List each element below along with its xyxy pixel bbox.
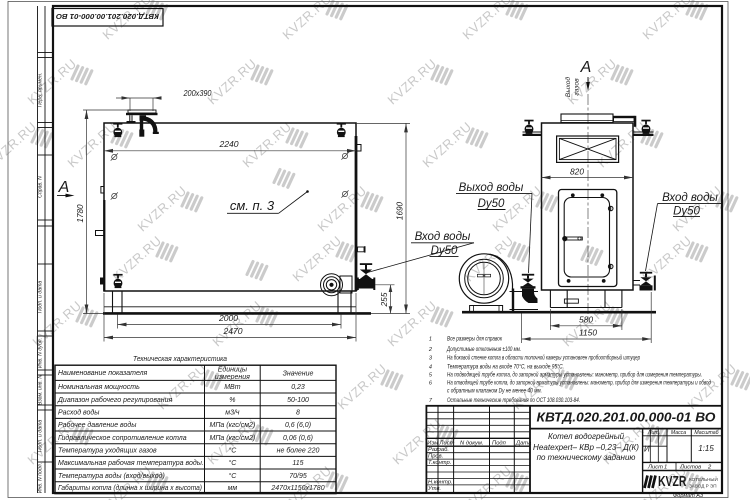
svg-text:0,06 (0,6): 0,06 (0,6) (283, 435, 313, 442)
svg-text:ЗАВОД Р ЭП: ЗАВОД Р ЭП (689, 484, 717, 489)
svg-text:1: 1 (429, 337, 432, 343)
svg-text:МПа (кгс/см2): МПа (кгс/см2) (210, 422, 256, 429)
svg-text:KVZR: KVZR (658, 474, 687, 490)
svg-text:мм: мм (228, 485, 238, 492)
svg-text:2: 2 (707, 465, 712, 471)
svg-text:Dy50: Dy50 (673, 206, 700, 218)
svg-text:255: 255 (379, 292, 389, 307)
svg-text:На боковой стенке котла в обла: На боковой стенке котла в области топочн… (447, 355, 640, 362)
svg-text:Инв. N дубл.: Инв. N дубл. (38, 338, 44, 368)
svg-text:7: 7 (429, 398, 433, 404)
svg-text:Масса: Масса (671, 430, 686, 436)
svg-text:8: 8 (296, 410, 300, 417)
svg-text:1150: 1150 (579, 328, 597, 338)
svg-text:°С: °С (228, 447, 237, 455)
svg-text:МПа (кгс/см2): МПа (кгс/см2) (210, 435, 256, 442)
svg-text:5: 5 (429, 373, 433, 379)
svg-text:Дата: Дата (515, 440, 532, 446)
svg-text:0,23: 0,23 (291, 384, 305, 391)
svg-text:6: 6 (429, 381, 433, 387)
svg-text:Изм: Изм (427, 440, 438, 446)
svg-text:Перв. примен.: Перв. примен. (38, 73, 44, 107)
svg-text:м3/ч: м3/ч (225, 410, 240, 417)
svg-text:4: 4 (429, 365, 432, 371)
svg-text:Лист: Лист (647, 465, 663, 471)
svg-text:3: 3 (429, 356, 433, 362)
svg-text:2470: 2470 (222, 326, 242, 336)
svg-text:Температура воды на входе 70°: Температура воды на входе 70°С, на выход… (447, 365, 564, 371)
svg-text:1690: 1690 (396, 201, 405, 220)
svg-text:Подп: Подп (492, 440, 507, 446)
svg-text:Расход воды: Расход воды (58, 409, 100, 417)
svg-text:КОТЕЛЬНЫЙ: КОТЕЛЬНЫЙ (689, 475, 718, 482)
svg-text:Выход: Выход (564, 77, 572, 98)
svg-text:с обратным клапаном Dу не мен: с обратным клапаном Dу не менее 40 мм. (447, 389, 542, 395)
svg-text:Остальные технические требован: Остальные технические требования по ОСТ … (447, 398, 580, 404)
svg-text:И: И (644, 445, 650, 454)
svg-text:Наименование показателя: Наименование показателя (58, 370, 148, 377)
svg-text:А: А (58, 179, 70, 196)
svg-text:200х390: 200х390 (183, 89, 212, 98)
svg-text:Формат А3: Формат А3 (673, 493, 704, 499)
svg-text:газов: газов (574, 78, 581, 96)
svg-text:Масштаб: Масштаб (694, 430, 719, 436)
svg-text:не более 220: не более 220 (277, 447, 320, 455)
svg-text:N докум.: N докум. (460, 440, 483, 446)
svg-text:%: % (229, 397, 235, 404)
svg-text:50-100: 50-100 (287, 397, 309, 404)
svg-text:2240: 2240 (218, 139, 238, 149)
svg-text:2: 2 (428, 347, 433, 353)
svg-text:А: А (580, 59, 592, 76)
svg-text:Лист: Лист (439, 440, 455, 446)
svg-text:Н.контр.: Н.контр. (428, 479, 453, 485)
svg-text:КВТД.020.201.00.000-01 ВО: КВТД.020.201.00.000-01 ВО (537, 411, 716, 425)
svg-text:70/95: 70/95 (289, 473, 307, 480)
svg-text:820: 820 (570, 167, 584, 177)
svg-text:см. п. 3: см. п. 3 (230, 198, 275, 213)
svg-text:Вход воды: Вход воды (415, 231, 471, 243)
svg-text:Значение: Значение (283, 371, 314, 378)
svg-text:Допустимые отклонения ±100 мм: Допустимые отклонения ±100 мм. (446, 347, 521, 353)
svg-text:Т.контр.: Т.контр. (428, 460, 451, 466)
svg-text:2000: 2000 (218, 313, 238, 323)
svg-text:Взам. инв. N: Взам. инв. N (38, 375, 44, 405)
svg-text:2470х1150х1780: 2470х1150х1780 (270, 485, 324, 492)
svg-text:1780: 1780 (76, 204, 85, 223)
svg-text:МВт: МВт (224, 384, 241, 391)
svg-text:На подводящей трубе котла, д: На подводящей трубе котла, до запорной а… (447, 372, 702, 379)
svg-text:Техническая характеристика: Техническая характеристика (133, 354, 227, 363)
svg-text:Номинальная мощность: Номинальная мощность (58, 384, 140, 391)
svg-text:Подп. и дата: Подп. и дата (38, 281, 44, 314)
svg-text:Heatexpert– КВр –0,23– Д(К): Heatexpert– КВр –0,23– Д(К) (533, 443, 639, 452)
svg-text:Лит.: Лит. (647, 430, 660, 436)
svg-text:Диапазон рабочего регулировани: Диапазон рабочего регулирования (57, 396, 173, 404)
svg-text:Вход воды: Вход воды (662, 192, 718, 204)
svg-text:1:15: 1:15 (698, 444, 714, 453)
svg-text:Разраб.: Разраб. (428, 447, 449, 453)
svg-text:по техническому заданию: по техническому заданию (537, 453, 636, 462)
svg-text:Гидравлическое сопротивление к: Гидравлическое сопротивление котла (58, 434, 187, 442)
svg-text:580: 580 (579, 315, 593, 325)
svg-text:Листов: Листов (679, 465, 701, 471)
svg-text:0,6 (6,0): 0,6 (6,0) (285, 422, 311, 429)
svg-text:Справ. N: Справ. N (38, 176, 44, 198)
svg-text:измерения: измерения (215, 374, 250, 381)
svg-text:1: 1 (664, 465, 667, 471)
svg-text:Рабочее давление воды: Рабочее давление воды (58, 421, 137, 429)
svg-text:Пров.: Пров. (428, 454, 443, 460)
svg-text:Максимальная рабочая температу: Максимальная рабочая температура воды. (58, 459, 204, 467)
svg-text:Температура воды (вход/выход): Температура воды (вход/выход) (58, 472, 165, 480)
svg-text:115: 115 (292, 460, 303, 467)
svg-text:Единицы: Единицы (218, 366, 248, 374)
svg-text:Котел водогрейный: Котел водогрейный (548, 432, 625, 441)
svg-text:Dy50: Dy50 (478, 198, 505, 210)
svg-text:Подп. и дата: Подп. и дата (38, 420, 44, 453)
svg-text:КВТД.020.201.00.000-01 ВО: КВТД.020.201.00.000-01 ВО (56, 12, 159, 21)
svg-text:Все размеры для справок: Все размеры для справок (447, 337, 503, 343)
svg-text:Температура уходящих газов: Температура уходящих газов (58, 447, 157, 455)
svg-text:Инв. N подл.: Инв. N подл. (38, 463, 44, 493)
svg-text:°С: °С (228, 459, 237, 467)
svg-text:Габариты котла (длинна х ширин: Габариты котла (длинна х ширина х высота… (58, 484, 202, 492)
svg-text:Выход воды: Выход воды (459, 182, 524, 194)
svg-text:Утв.: Утв. (427, 486, 441, 492)
svg-text:На отводящей трубе котла, до з: На отводящей трубе котла, до запорной ар… (447, 380, 711, 387)
svg-text:°С: °С (228, 472, 237, 480)
